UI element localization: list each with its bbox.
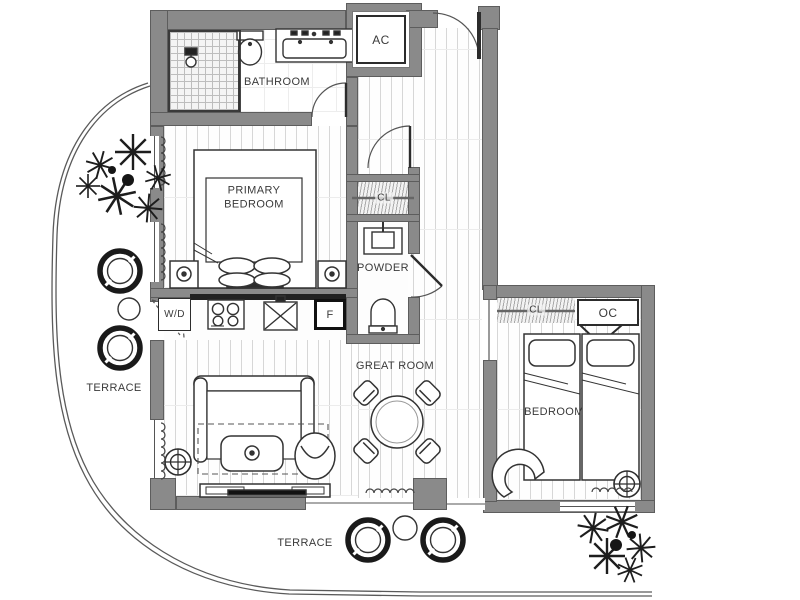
bedroom-label: BEDROOM [524, 406, 584, 418]
terrace-bottom-label: TERRACE [277, 537, 332, 549]
owners-closet: OC [577, 299, 639, 326]
primary-bedroom-label: PRIMARY BEDROOM [211, 184, 297, 213]
fridge: F [314, 299, 346, 330]
powder-label: POWDER [357, 262, 409, 274]
oc-label: OC [599, 306, 618, 320]
primary-closet-label: CL [375, 193, 393, 204]
washer-dryer: W/D [158, 298, 191, 331]
fridge-label: F [326, 309, 333, 321]
bathroom-label: BATHROOM [244, 76, 310, 88]
bedroom-closet-label: CL [527, 305, 545, 316]
floor-plan: AC W/D F OC BATHROOM PRIMARY BEDROOM CL … [0, 0, 800, 600]
ac-closet: AC [356, 15, 406, 64]
labeled-boxes: AC W/D F OC [0, 0, 800, 600]
terrace-left-label: TERRACE [86, 382, 141, 394]
wd-label: W/D [164, 309, 185, 320]
ac-label: AC [372, 33, 389, 47]
great-room-label: GREAT ROOM [356, 360, 434, 372]
